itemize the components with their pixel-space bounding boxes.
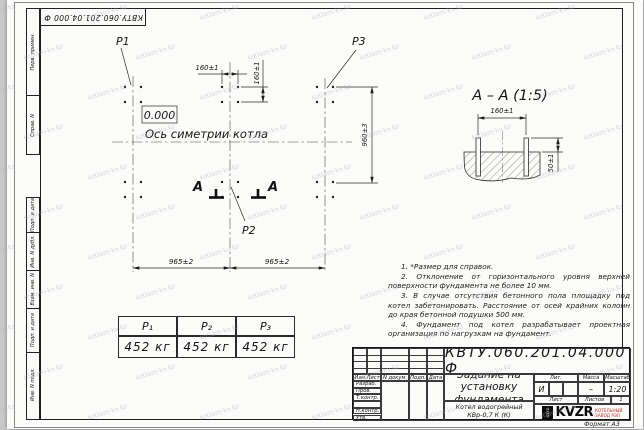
change-row-line	[353, 368, 444, 369]
load-point-label-p1: P1	[116, 35, 130, 48]
plan-centerlines	[112, 62, 352, 272]
drawing-sheet-page: { "sheet": { "stamp_top": "КВТУ.060.201.…	[0, 0, 644, 430]
section-letter: А	[267, 180, 278, 195]
sign-column	[409, 381, 427, 421]
section-cut-marks: А А	[192, 180, 278, 198]
dim-top-160-vertical: 160±1	[241, 60, 268, 102]
axis-of-symmetry-label: Ось симетрии котла	[145, 127, 268, 141]
note-4: 4. Фундамент под котел разрабатывает про…	[388, 320, 630, 339]
sheet-label: Лист	[534, 396, 578, 404]
role-tkontr: Т.контр.	[353, 394, 381, 401]
dim-text: 160±1	[196, 64, 219, 72]
mass-label: Масса	[578, 374, 604, 382]
section-dim-160: 160±1	[478, 107, 526, 135]
lit-cell-3	[563, 382, 578, 396]
scale-label: Масштаб	[604, 374, 631, 382]
company-logo: ООО KVZR КОТЕЛЬНЫЙ ЗАВОД РЭП	[542, 405, 622, 420]
load-table-header-p2: P₂	[177, 316, 237, 337]
dim-text: 965±2	[169, 257, 194, 266]
role-blank	[353, 401, 381, 408]
col-header-sign: Подп.	[409, 374, 427, 381]
plan-view: 965±2 965±2 160±1 160±1 960±3	[112, 35, 378, 272]
anchor-bolt-right	[524, 138, 529, 176]
change-row-line	[353, 355, 444, 356]
dim-text: 160±1	[253, 62, 261, 85]
anchor-bolt-left	[476, 138, 481, 176]
role-prov: Пров.	[353, 388, 381, 395]
dim-text: 160±1	[491, 107, 514, 115]
mass-value: –	[578, 382, 604, 396]
load-table-value-p2: 452 кг	[177, 336, 237, 359]
scale-value: 1:20	[604, 382, 631, 396]
lit-cell-2	[549, 382, 563, 396]
format-label: Формат А3	[584, 421, 620, 428]
document-title: Задание на установку фундамента	[444, 374, 534, 401]
load-table-value-p3: 452 кг	[236, 336, 296, 359]
designation-cell: КВТУ.060.201.04.000 Ф	[444, 348, 631, 374]
logo-ooo-text: ООО	[545, 407, 550, 417]
dim-bottom-965: 965±2 965±2	[133, 257, 325, 268]
sheets-label: Листов	[578, 396, 611, 404]
elevation-value: 0.000	[144, 109, 176, 122]
section-letter: А	[192, 180, 203, 195]
change-row-line	[353, 361, 444, 362]
lit-value: И	[534, 382, 549, 396]
logo-subtitle: КОТЕЛЬНЫЙ ЗАВОД РЭП	[595, 408, 622, 418]
doc-number-column	[381, 381, 409, 421]
title-block: КВТУ.060.201.04.000 Ф Изм.Лист N докум. …	[352, 347, 630, 420]
load-point-label-p3: P3	[352, 35, 366, 48]
load-table-value-p1: 452 кг	[118, 336, 178, 359]
load-table-header-p1: P₁	[118, 316, 178, 337]
role-utv: Утв.	[353, 415, 381, 422]
role-razrab: Разраб.	[353, 381, 381, 388]
company-logo-cell: ООО KVZR КОТЕЛЬНЫЙ ЗАВОД РЭП	[534, 404, 631, 421]
dim-top-160-horizontal: 160±1	[196, 64, 248, 84]
product-name: Котел водогрейный КВр-0,7 К (К)	[444, 401, 534, 421]
note-2: 2. Отклонение от горизонтального уровня …	[388, 272, 630, 291]
logo-subtitle-line2: ЗАВОД РЭП	[595, 413, 622, 418]
col-header-izm: Изм.Лист	[353, 374, 381, 381]
date-column	[427, 381, 444, 421]
logo-name: KVZR	[555, 405, 593, 420]
section-title: А – А (1:5)	[471, 88, 548, 104]
note-3: 3. В случае отсутствия бетонного пола пл…	[388, 291, 630, 320]
col-header-doc: N докум.	[381, 374, 409, 381]
dim-text: 960±3	[361, 124, 369, 147]
section-view: А – А (1:5) 160±1 50±1	[464, 88, 563, 183]
notes-block: 1. *Размер для справок. 2. Отклонение от…	[388, 262, 630, 339]
lit-label: Лит.	[534, 374, 578, 382]
elevation-mark: 0.000 Ось симетрии котла	[142, 106, 268, 141]
col-header-date: Дата	[427, 374, 444, 381]
dim-text: 965±2	[265, 257, 290, 266]
dim-text: 50±1	[547, 154, 555, 173]
load-point-label-p2: P2	[242, 224, 256, 237]
role-nkontr: Н.контр.	[353, 408, 381, 415]
load-table-header-p3: P₃	[236, 316, 296, 337]
dim-right-960: 960±3	[336, 87, 378, 183]
note-1: 1. *Размер для справок.	[388, 262, 630, 272]
sheets-value: 1	[611, 396, 631, 404]
logo-ooo-box: ООО	[542, 406, 553, 420]
load-table: P₁ P₂ P₃ 452 кг 452 кг 452 кг	[118, 316, 295, 358]
